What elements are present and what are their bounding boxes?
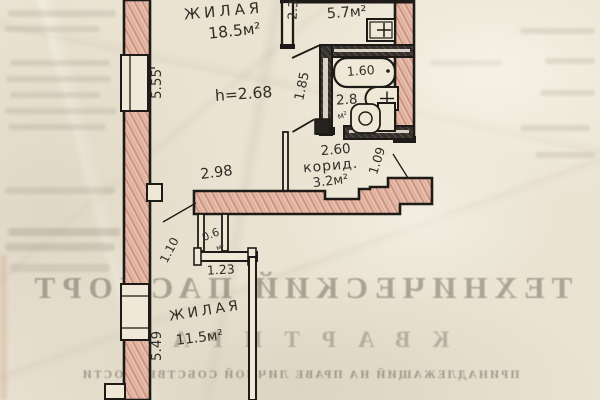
kitchen-sink: [367, 19, 395, 41]
wall-step-bottom: [105, 384, 125, 399]
wall-double-line: [334, 49, 410, 52]
wall-segment: [395, 0, 414, 138]
dim-kitchen-width: 2.3: [284, 0, 300, 20]
leader-line-entry-dim: [393, 154, 408, 178]
leader-line-doorway-dim: [163, 203, 196, 222]
outer-wall-right: [393, 0, 416, 143]
window-bottom: [121, 284, 149, 340]
scanned-floor-plan-page: ТЕХНИЧЕСКИЙ ПАСПОРТ КВАРТИРА ПРИНАДЛЕЖАЩ…: [0, 0, 600, 400]
label-bath-area: 2.8: [336, 91, 358, 108]
toilet-seat: [351, 104, 380, 133]
wall-double-line: [323, 58, 328, 124]
room2-right-wall: [249, 257, 256, 400]
toilet: [351, 103, 395, 133]
label-kitchen-area: 5.7м²: [326, 4, 367, 23]
dim-niche: 1.23: [206, 261, 235, 277]
label-bath-area-unit: м²: [336, 110, 348, 122]
partition-living-corridor: [283, 132, 288, 193]
niche-wall-flange: [194, 248, 201, 265]
wall-end-cap: [280, 44, 295, 49]
label-corridor-area: 3.2м²: [312, 172, 349, 191]
dim-wall: 2.98: [200, 163, 234, 183]
dim-entry: 1.09: [365, 145, 388, 176]
wall-pier-notch: [147, 184, 162, 201]
label-room2-name: ЖИЛАЯ: [168, 297, 242, 324]
dim-left-top: 5.55: [149, 69, 165, 99]
label-room2-area: 11.5м²: [175, 327, 224, 349]
door-swing-corridor: [293, 120, 315, 133]
label-ceiling-height: h=2.68: [214, 83, 272, 105]
label-tub-length: 1.60: [346, 62, 375, 79]
label-room1-area: 18.5м²: [207, 19, 261, 42]
window-top: [121, 55, 148, 111]
faucet-dot-icon: [386, 69, 390, 73]
door-swing-kitchen: [292, 46, 319, 59]
door-jamb-stub: [315, 119, 330, 134]
floor-plan-drawing: ЖИЛАЯ 18.5м² 5.55 h=2.68 2.3 5.7м² 1.85 …: [0, 0, 600, 400]
dim-hall: 1.85: [292, 71, 313, 102]
dim-left-bottom: 5.49: [149, 331, 165, 361]
dim-doorway: 1.10: [157, 235, 182, 265]
